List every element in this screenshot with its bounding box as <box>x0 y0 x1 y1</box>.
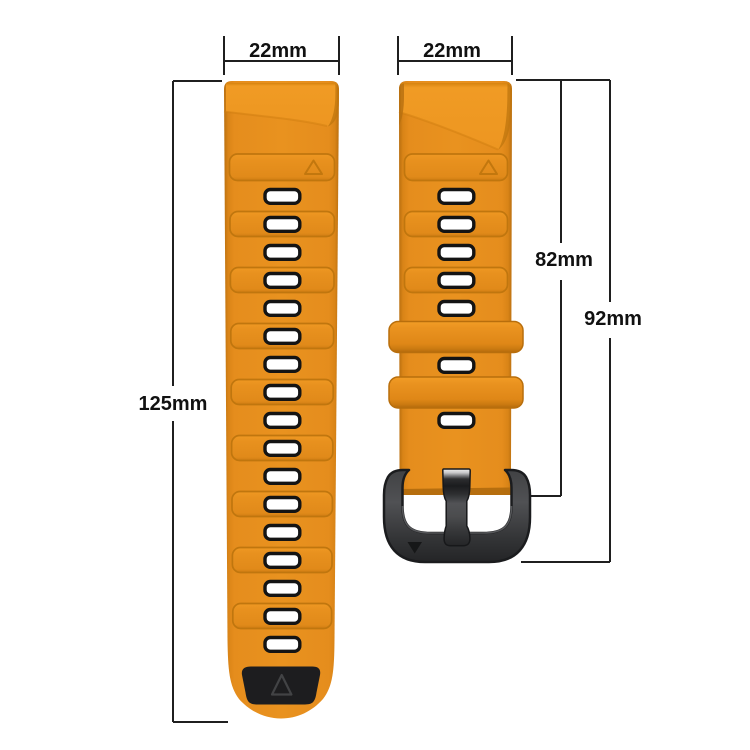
svg-text:92mm: 92mm <box>584 308 642 330</box>
svg-text:22mm: 22mm <box>423 40 481 62</box>
svg-text:125mm: 125mm <box>139 393 208 415</box>
svg-text:22mm: 22mm <box>249 40 307 62</box>
svg-text:82mm: 82mm <box>535 249 593 271</box>
